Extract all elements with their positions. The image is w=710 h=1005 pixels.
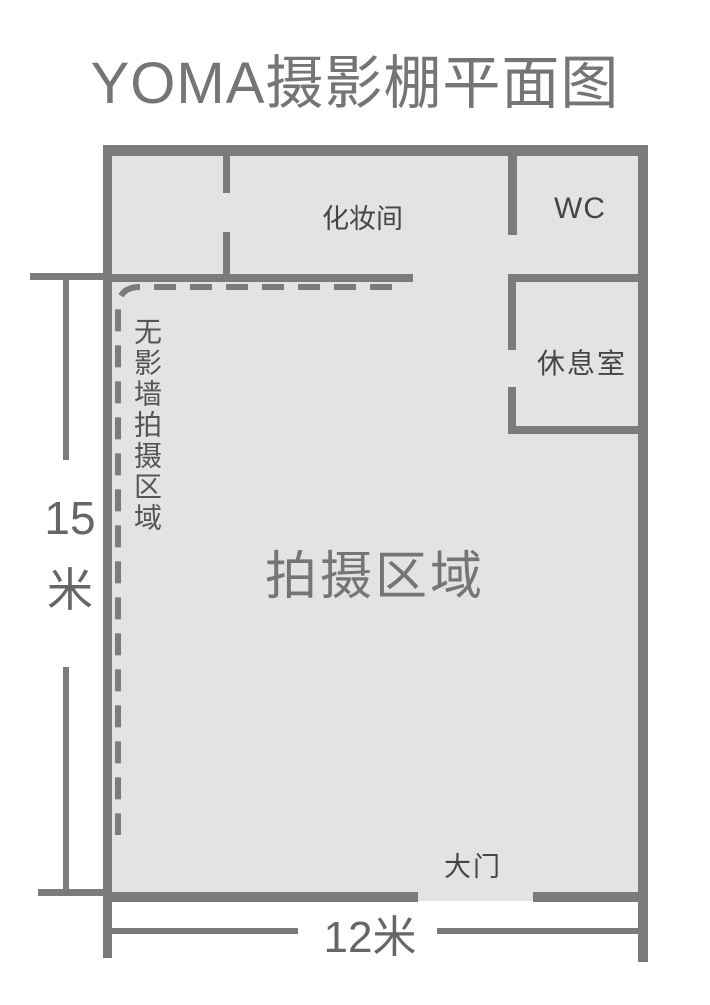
dimension-width-line-right bbox=[437, 928, 645, 934]
dimension-height-line-lower bbox=[63, 667, 69, 889]
dimension-height-label: 15 米 bbox=[36, 482, 104, 626]
dimension-height-line-upper bbox=[63, 280, 69, 460]
floor-plan: YOMA摄影棚平面图 化妆间 WC 休息室 拍摄区域 无影墙拍摄区域 大门 15… bbox=[0, 0, 710, 1005]
dimension-width-label: 12米 bbox=[308, 901, 432, 965]
page-title: YOMA摄影棚平面图 bbox=[0, 36, 710, 120]
outer-wall-right bbox=[638, 145, 648, 962]
gate-opening bbox=[418, 892, 533, 901]
wc-label: WC bbox=[554, 192, 606, 226]
makeup-room-label: 化妆间 bbox=[322, 197, 403, 236]
outer-wall-left bbox=[103, 145, 112, 958]
outer-wall-top bbox=[103, 145, 648, 156]
studio-floor bbox=[112, 155, 638, 893]
dimension-width-line-left bbox=[107, 928, 298, 934]
dimension-height-value: 15 bbox=[36, 482, 104, 554]
lounge-top-wall bbox=[508, 274, 638, 282]
seamless-wall-area-label: 无影墙拍摄区域 bbox=[126, 317, 166, 552]
lounge-bottom-wall bbox=[508, 426, 638, 434]
lounge-left-wall-upper bbox=[508, 282, 516, 350]
lounge-label: 休息室 bbox=[537, 342, 627, 382]
makeup-bottom-wall bbox=[103, 274, 413, 282]
dimension-height-tick-top bbox=[30, 273, 103, 280]
dimension-height-unit: 米 bbox=[36, 554, 104, 626]
shooting-area-label: 拍摄区域 bbox=[265, 534, 485, 609]
dimension-height-tick-bottom bbox=[38, 889, 103, 896]
outer-wall-bottom-right bbox=[533, 892, 648, 902]
makeup-divider-lower bbox=[223, 232, 230, 274]
main-gate-label: 大门 bbox=[444, 845, 502, 884]
makeup-divider-upper bbox=[223, 156, 230, 193]
wc-divider-wall bbox=[508, 156, 517, 235]
